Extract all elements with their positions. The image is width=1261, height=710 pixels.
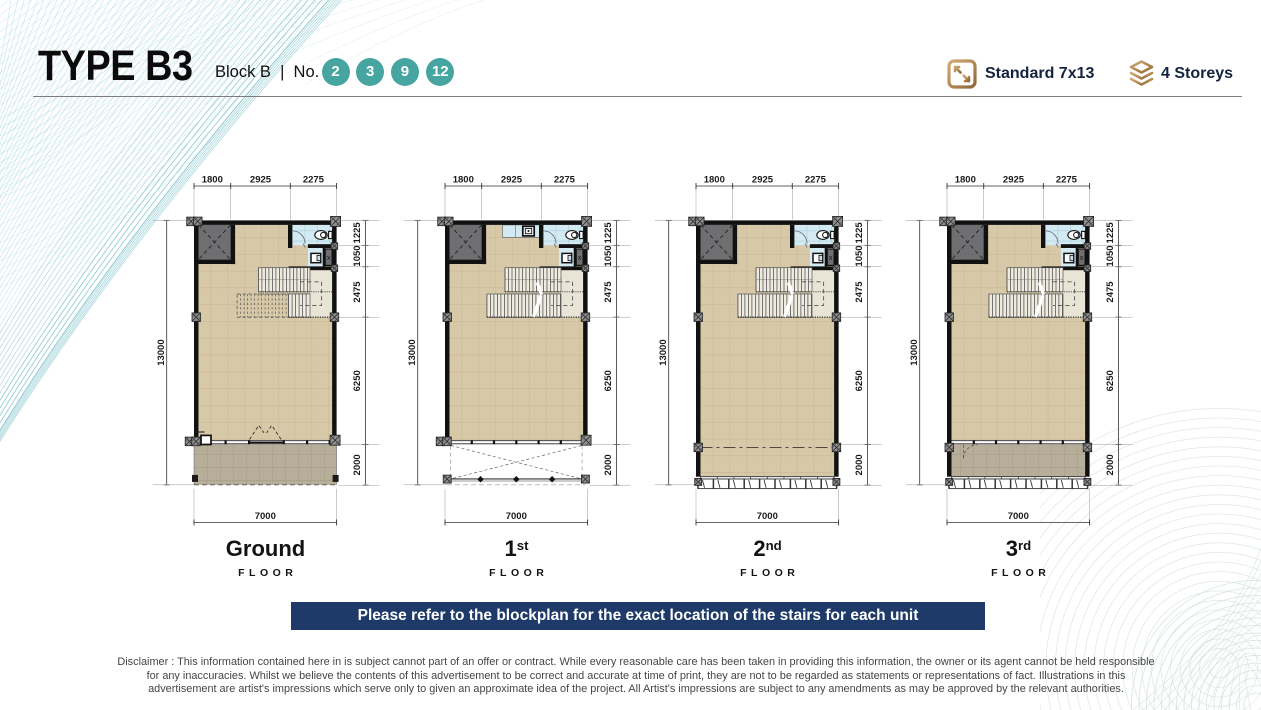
svg-text:6250: 6250 bbox=[854, 370, 865, 391]
svg-text:2000: 2000 bbox=[603, 454, 614, 475]
svg-text:2475: 2475 bbox=[352, 281, 363, 303]
svg-text:2475: 2475 bbox=[1105, 281, 1116, 303]
svg-text:x: x bbox=[578, 255, 582, 262]
svg-text:7000: 7000 bbox=[1008, 511, 1029, 522]
svg-text:1225: 1225 bbox=[1105, 222, 1116, 244]
svg-text:13000: 13000 bbox=[909, 339, 920, 365]
svg-text:2000: 2000 bbox=[352, 454, 363, 475]
svg-text:1225: 1225 bbox=[854, 222, 865, 244]
svg-text:7000: 7000 bbox=[506, 511, 527, 522]
svg-text:2925: 2925 bbox=[501, 175, 523, 186]
svg-text:2000: 2000 bbox=[1105, 454, 1116, 475]
svg-text:2275: 2275 bbox=[805, 175, 827, 186]
svg-text:1050: 1050 bbox=[854, 245, 865, 266]
svg-text:13000: 13000 bbox=[658, 339, 669, 365]
svg-text:7000: 7000 bbox=[757, 511, 778, 522]
svg-text:1050: 1050 bbox=[352, 245, 363, 266]
svg-text:1050: 1050 bbox=[603, 245, 614, 266]
svg-text:2475: 2475 bbox=[854, 281, 865, 303]
svg-text:1800: 1800 bbox=[704, 175, 725, 186]
svg-text:1800: 1800 bbox=[202, 175, 223, 186]
svg-text:x: x bbox=[327, 255, 331, 262]
svg-text:1800: 1800 bbox=[453, 175, 474, 186]
svg-text:1225: 1225 bbox=[352, 222, 363, 244]
svg-text:2925: 2925 bbox=[752, 175, 774, 186]
svg-text:6250: 6250 bbox=[603, 370, 614, 391]
svg-text:13000: 13000 bbox=[407, 339, 418, 365]
svg-text:x: x bbox=[829, 255, 833, 262]
svg-text:x: x bbox=[1080, 255, 1084, 262]
svg-text:2925: 2925 bbox=[250, 175, 272, 186]
svg-text:2275: 2275 bbox=[1056, 175, 1078, 186]
svg-text:2475: 2475 bbox=[603, 281, 614, 303]
svg-text:1050: 1050 bbox=[1105, 245, 1116, 266]
svg-text:13000: 13000 bbox=[156, 339, 167, 365]
svg-text:1800: 1800 bbox=[955, 175, 976, 186]
svg-text:2000: 2000 bbox=[854, 454, 865, 475]
svg-text:2925: 2925 bbox=[1003, 175, 1025, 186]
svg-text:2275: 2275 bbox=[554, 175, 576, 186]
svg-text:6250: 6250 bbox=[1105, 370, 1116, 391]
svg-text:6250: 6250 bbox=[352, 370, 363, 391]
svg-text:7000: 7000 bbox=[255, 511, 276, 522]
svg-text:1225: 1225 bbox=[603, 222, 614, 244]
svg-text:2275: 2275 bbox=[303, 175, 325, 186]
